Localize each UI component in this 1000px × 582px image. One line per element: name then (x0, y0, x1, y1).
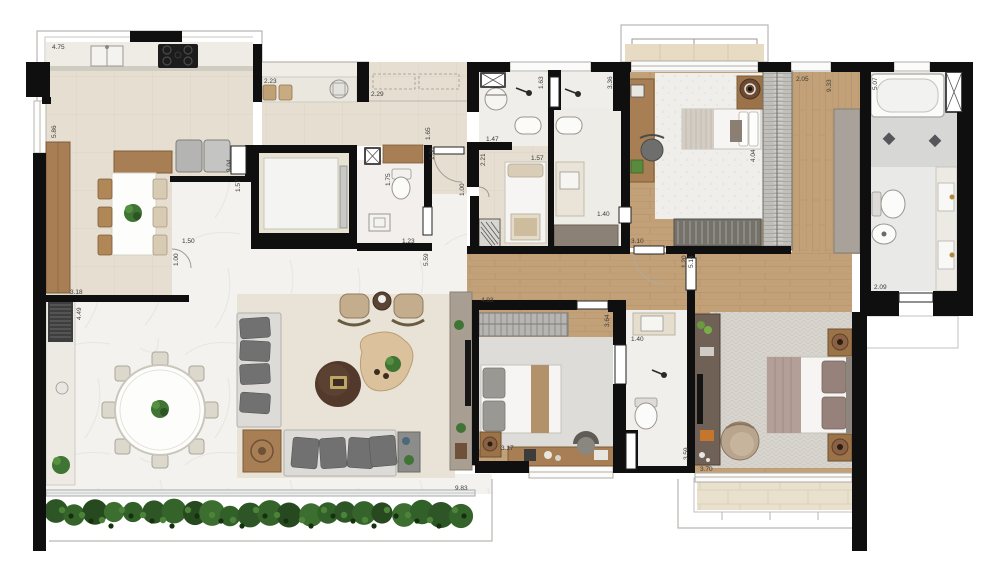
svg-text:1.75: 1.75 (385, 173, 392, 186)
svg-text:2.09: 2.09 (874, 284, 887, 291)
svg-text:1.57: 1.57 (531, 155, 544, 162)
svg-text:9.33: 9.33 (826, 79, 833, 92)
svg-text:3.70: 3.70 (700, 466, 713, 473)
svg-text:3.64: 3.64 (604, 314, 611, 327)
svg-text:4.04: 4.04 (750, 149, 757, 162)
svg-text:4.93: 4.93 (481, 297, 494, 304)
svg-text:1.57: 1.57 (235, 179, 242, 192)
svg-text:9.83: 9.83 (455, 485, 468, 492)
svg-text:1.00: 1.00 (459, 183, 466, 196)
svg-text:2.21: 2.21 (480, 153, 487, 166)
svg-text:1.40: 1.40 (597, 211, 610, 218)
svg-text:1.63: 1.63 (538, 76, 545, 89)
svg-text:3.17: 3.17 (501, 445, 514, 452)
svg-text:4.75: 4.75 (52, 44, 65, 51)
svg-text:3.04: 3.04 (226, 159, 233, 172)
svg-text:5.86: 5.86 (51, 125, 58, 138)
svg-text:5.14: 5.14 (688, 255, 695, 268)
svg-text:5.59: 5.59 (423, 253, 430, 266)
svg-text:5.07: 5.07 (872, 77, 879, 90)
svg-text:1.23: 1.23 (402, 238, 415, 245)
svg-text:3.59: 3.59 (683, 447, 690, 460)
svg-text:1.50: 1.50 (182, 238, 195, 245)
svg-text:1.06: 1.06 (429, 147, 436, 160)
svg-text:2.29: 2.29 (371, 91, 384, 98)
svg-text:3.36: 3.36 (607, 76, 614, 89)
svg-text:4.49: 4.49 (76, 307, 83, 320)
svg-text:3.10: 3.10 (631, 238, 644, 245)
svg-text:1.47: 1.47 (486, 136, 499, 143)
svg-text:3.18: 3.18 (70, 289, 83, 296)
svg-text:1.65: 1.65 (425, 127, 432, 140)
svg-text:1.40: 1.40 (631, 336, 644, 343)
svg-text:1.20: 1.20 (681, 255, 688, 268)
svg-text:2.05: 2.05 (796, 76, 809, 83)
svg-text:2.23: 2.23 (264, 78, 277, 85)
svg-text:1.00: 1.00 (173, 253, 180, 266)
